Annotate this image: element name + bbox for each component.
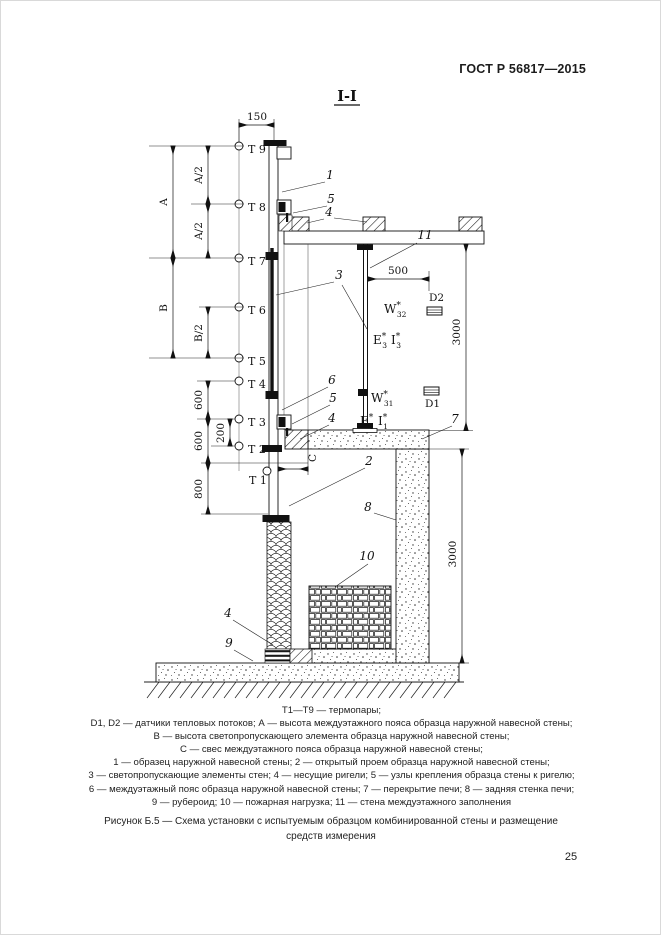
thermocouple-label: Т 1 bbox=[249, 474, 267, 487]
upper-slab bbox=[284, 231, 484, 244]
sensor-d1 bbox=[424, 387, 439, 395]
callout-5: 5 bbox=[329, 391, 337, 405]
sensor-d2 bbox=[427, 307, 442, 315]
dim-800: 800 bbox=[193, 479, 205, 499]
callout-4: 4 bbox=[327, 411, 336, 425]
legend-line: 9 — рубероид; 10 — пожарная нагрузка; 11… bbox=[29, 796, 634, 809]
legend-line: D1, D2 — датчики тепловых потоков; А — в… bbox=[29, 717, 634, 730]
thermocouple-label: Т 6 bbox=[248, 304, 266, 317]
figure-caption: Рисунок Б.5 — Схема установки с испытуем… bbox=[56, 815, 606, 844]
heat-flux-sensors: D2 D1 bbox=[424, 292, 444, 410]
mid-beam bbox=[285, 430, 308, 449]
dim-b2: B/2 bbox=[193, 324, 205, 342]
legend-line: 6 — междуэтажный пояс образца наружной н… bbox=[29, 783, 634, 796]
thermocouple-label: Т 7 bbox=[248, 255, 266, 268]
callout-1: 1 bbox=[326, 168, 334, 182]
legend-line: 3 — светопропускающие элементы стен; 4 —… bbox=[29, 769, 634, 782]
glazing-panel bbox=[270, 248, 273, 399]
dim-a: A bbox=[158, 198, 170, 207]
thermocouple-label: Т 3 bbox=[248, 416, 266, 429]
bottom-beam bbox=[290, 649, 312, 663]
thermocouple-label: Т 5 bbox=[248, 355, 266, 368]
dim-600: 600 bbox=[193, 390, 205, 410]
dim-3000: 3000 bbox=[447, 541, 459, 568]
upper-beam-right bbox=[459, 217, 482, 231]
dim-3000: 3000 bbox=[451, 319, 463, 346]
spandrel-panel bbox=[267, 522, 291, 649]
figure-legend: Т1—Т9 — термопары; D1, D2 — датчики тепл… bbox=[29, 704, 634, 809]
thermocouple-marker bbox=[235, 442, 243, 450]
furnace-back-wall bbox=[396, 449, 429, 663]
wall-slab-joint bbox=[279, 215, 292, 231]
callout-10: 10 bbox=[359, 549, 375, 563]
thermocouple-column: Т 9 Т 8 Т 7 Т 6 Т 5 Т 4 Т 3 Т 2 Т 1 bbox=[235, 125, 271, 487]
measure-w-lower: W*31 bbox=[371, 390, 393, 408]
thermocouple-label: Т 8 bbox=[248, 201, 266, 214]
thermocouple-label: Т 2 bbox=[248, 443, 266, 456]
caption-line: средств измерения bbox=[56, 830, 606, 845]
legend-line: Т1—Т9 — термопары; bbox=[29, 704, 634, 717]
thermocouple-label: Т 9 bbox=[248, 143, 266, 156]
legend-line: С — свес междуэтажного пояса образца нар… bbox=[29, 743, 634, 756]
section-title: I-I bbox=[334, 88, 360, 105]
caption-line: Рисунок Б.5 — Схема установки с испытуем… bbox=[56, 815, 606, 830]
dim-a2: A/2 bbox=[193, 222, 205, 241]
dim-b: B bbox=[158, 304, 170, 312]
dim-200: 200 bbox=[215, 423, 227, 443]
dim-a2: A/2 bbox=[193, 166, 205, 185]
dim-150: 150 bbox=[247, 111, 267, 123]
page-number: 25 bbox=[541, 851, 601, 863]
dim-600: 600 bbox=[193, 431, 205, 451]
thermocouple-marker bbox=[235, 377, 243, 385]
callout-7: 7 bbox=[451, 412, 459, 426]
callout-9: 9 bbox=[225, 636, 233, 650]
sensor-d2-label: D2 bbox=[429, 292, 444, 304]
ground-hatch bbox=[144, 682, 464, 698]
standard-header: ГОСТ Р 56817—2015 bbox=[286, 62, 586, 76]
dim-c: C bbox=[307, 454, 319, 462]
thermocouple-label: Т 4 bbox=[248, 378, 266, 391]
legend-line: 1 — образец наружной навесной стены; 2 —… bbox=[29, 756, 634, 769]
measure-w-upper: W*32 bbox=[384, 301, 407, 319]
callout-4: 4 bbox=[324, 205, 333, 219]
callout-5: 5 bbox=[327, 192, 335, 206]
wall-sensor-tab bbox=[358, 389, 367, 396]
ruberoid-layers bbox=[265, 649, 290, 663]
callout-2: 2 bbox=[364, 454, 373, 468]
foundation-slab bbox=[156, 663, 459, 682]
callout-8: 8 bbox=[364, 500, 372, 514]
top-bracket bbox=[277, 147, 291, 159]
fire-load-bricks bbox=[309, 586, 391, 649]
callout-6: 6 bbox=[328, 373, 336, 387]
upper-beam-mid bbox=[363, 217, 385, 231]
measure-e-i-upper: E*3I*3 bbox=[373, 332, 401, 350]
section-label: I-I bbox=[337, 88, 357, 105]
callout-3: 3 bbox=[335, 268, 343, 282]
callout-11: 11 bbox=[417, 228, 432, 242]
sensor-d1-label: D1 bbox=[425, 398, 440, 410]
construction-lines bbox=[284, 244, 308, 430]
dim-500: 500 bbox=[388, 265, 408, 277]
measurement-labels: W*32 E*3I*3 W*31 E*1I*1 bbox=[360, 301, 407, 431]
legend-line: В — высота светопропускающего элемента о… bbox=[29, 730, 634, 743]
callout-4: 4 bbox=[223, 606, 232, 620]
thermocouple-marker bbox=[235, 415, 243, 423]
document-page: ГОСТ Р 56817—2015 bbox=[0, 0, 661, 935]
